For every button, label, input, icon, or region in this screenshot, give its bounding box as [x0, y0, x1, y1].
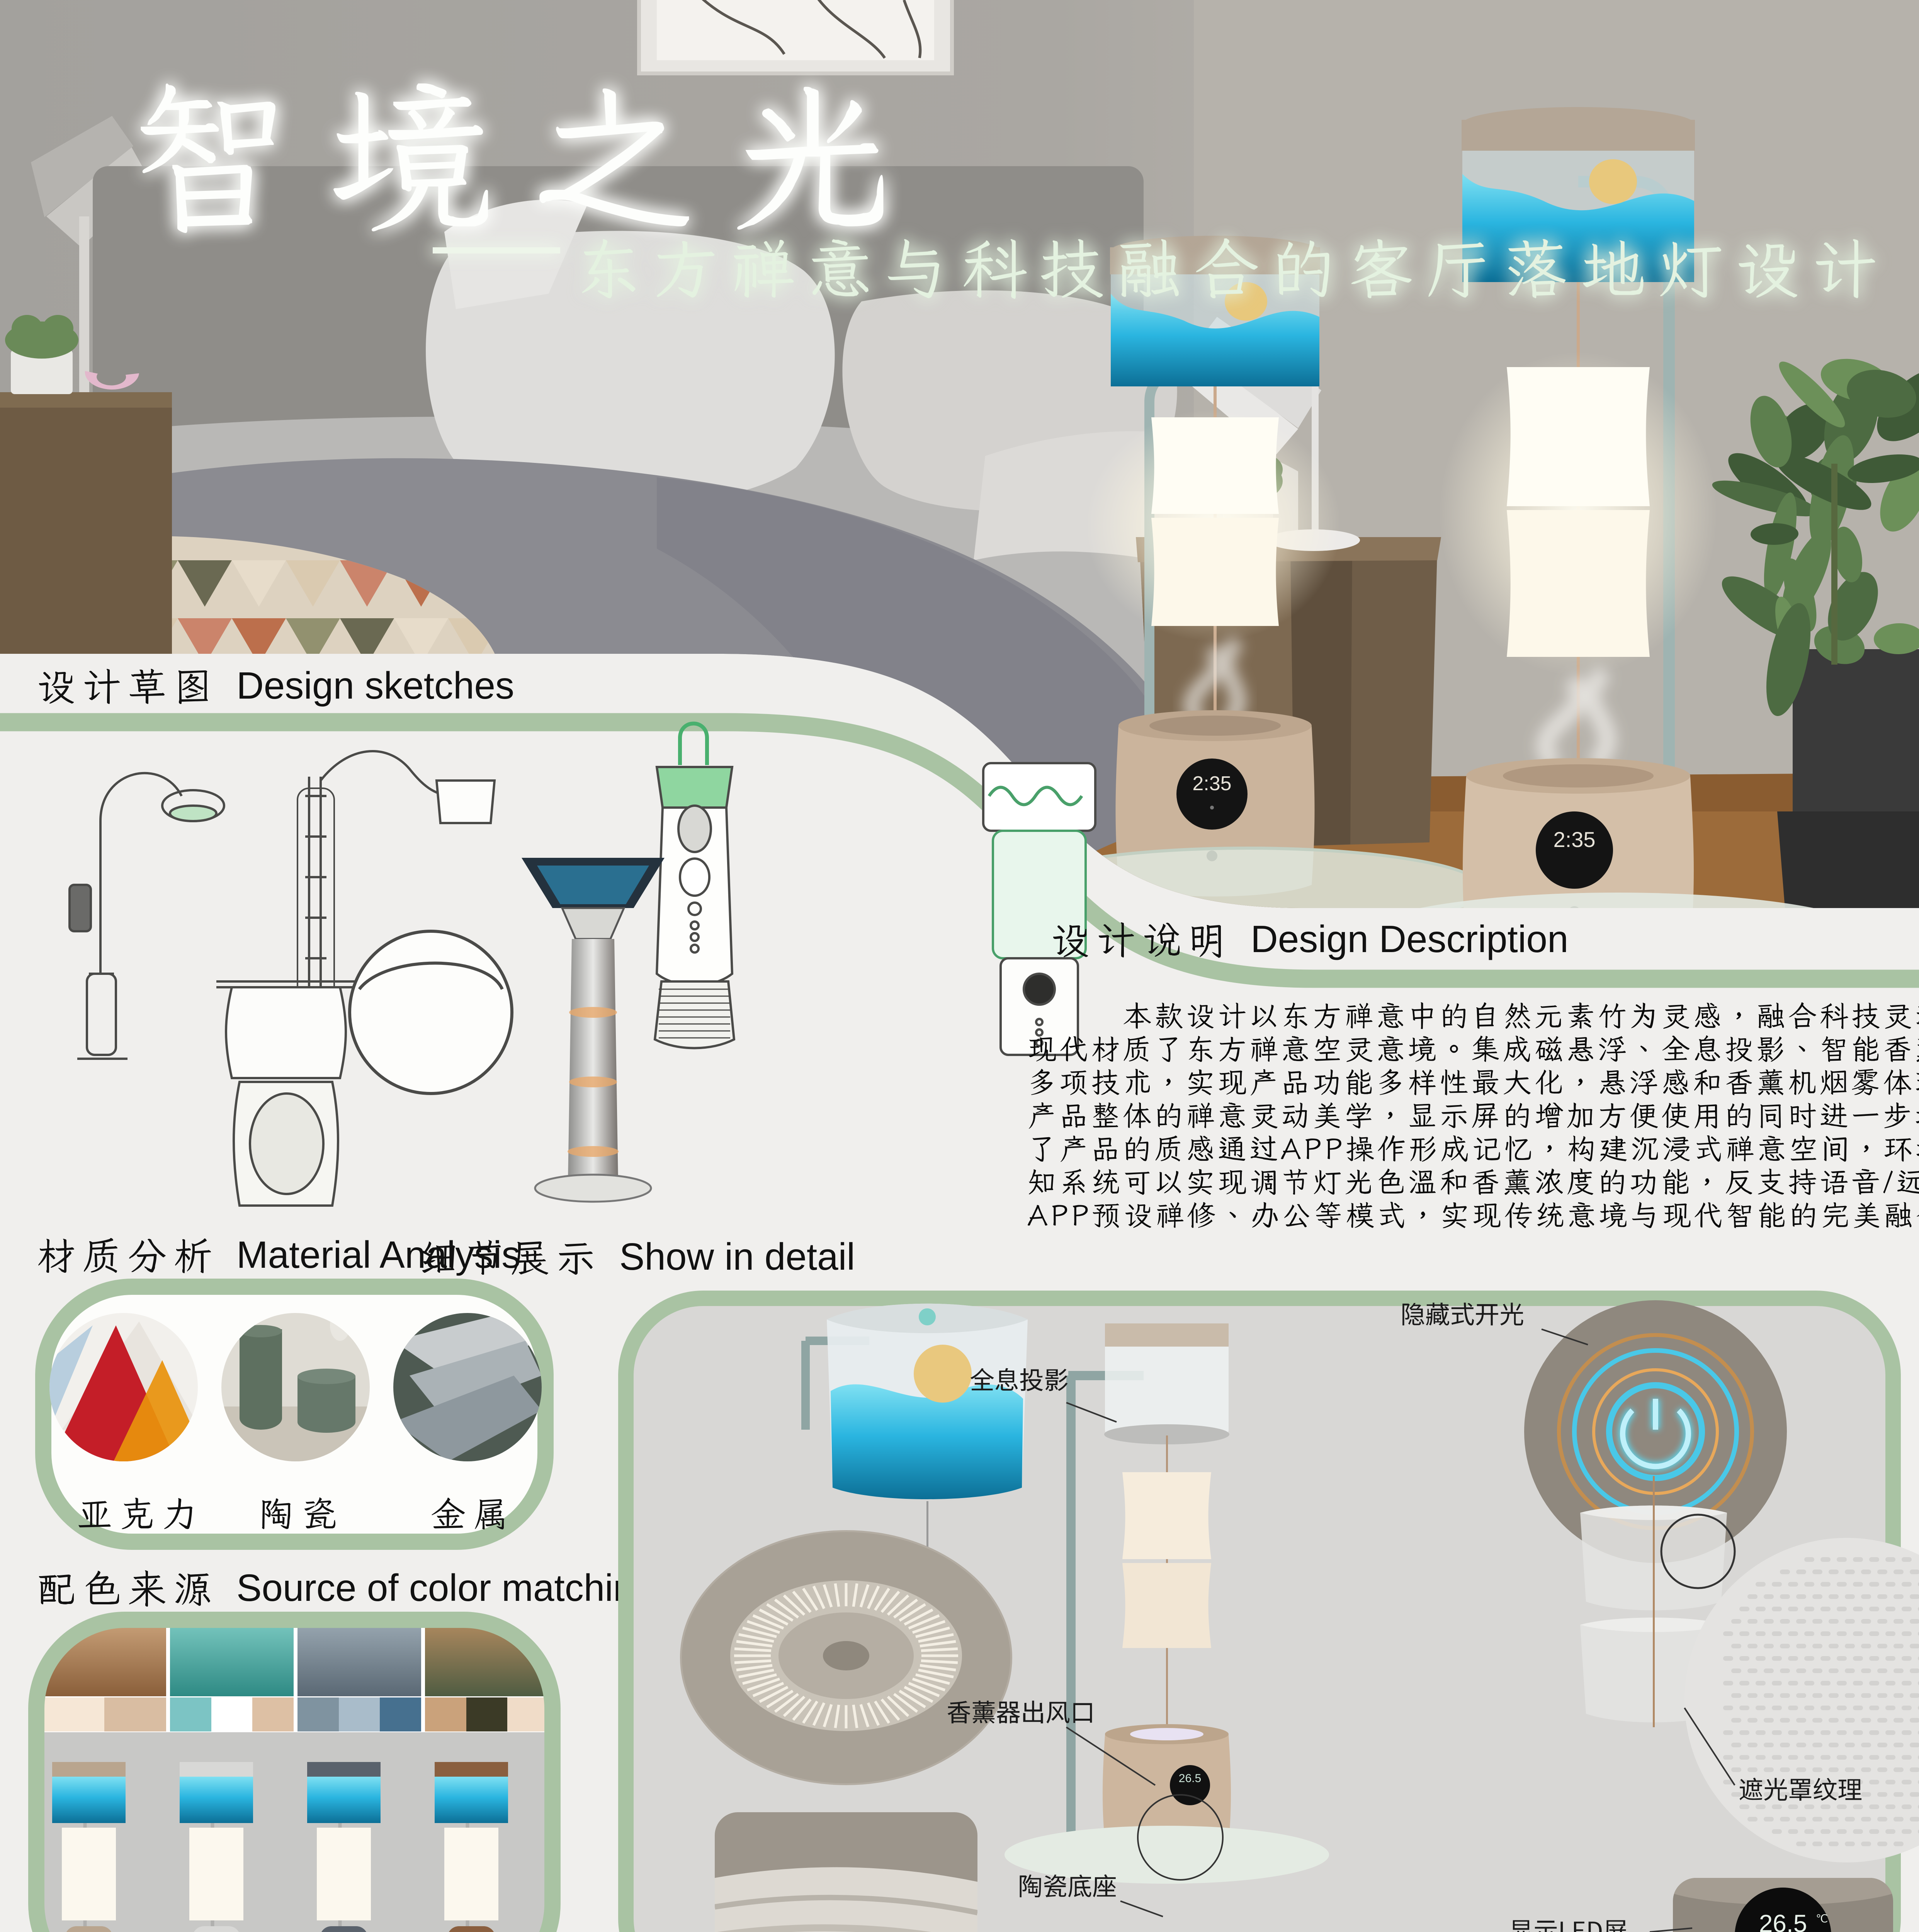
svg-text:26.5: 26.5 [1759, 1910, 1807, 1932]
svg-text:2:35: 2:35 [1554, 827, 1596, 852]
svg-text:Source of color matching: Source of color matching [236, 1566, 655, 1609]
svg-text:2:35: 2:35 [1192, 772, 1231, 795]
svg-text:Show in detail: Show in detail [619, 1235, 855, 1278]
svg-text:Design Description: Design Description [1251, 918, 1568, 960]
svg-text:Design sketches: Design sketches [236, 664, 514, 707]
svg-text:26.5: 26.5 [1179, 1772, 1201, 1785]
svg-text:℃: ℃ [1816, 1913, 1828, 1925]
